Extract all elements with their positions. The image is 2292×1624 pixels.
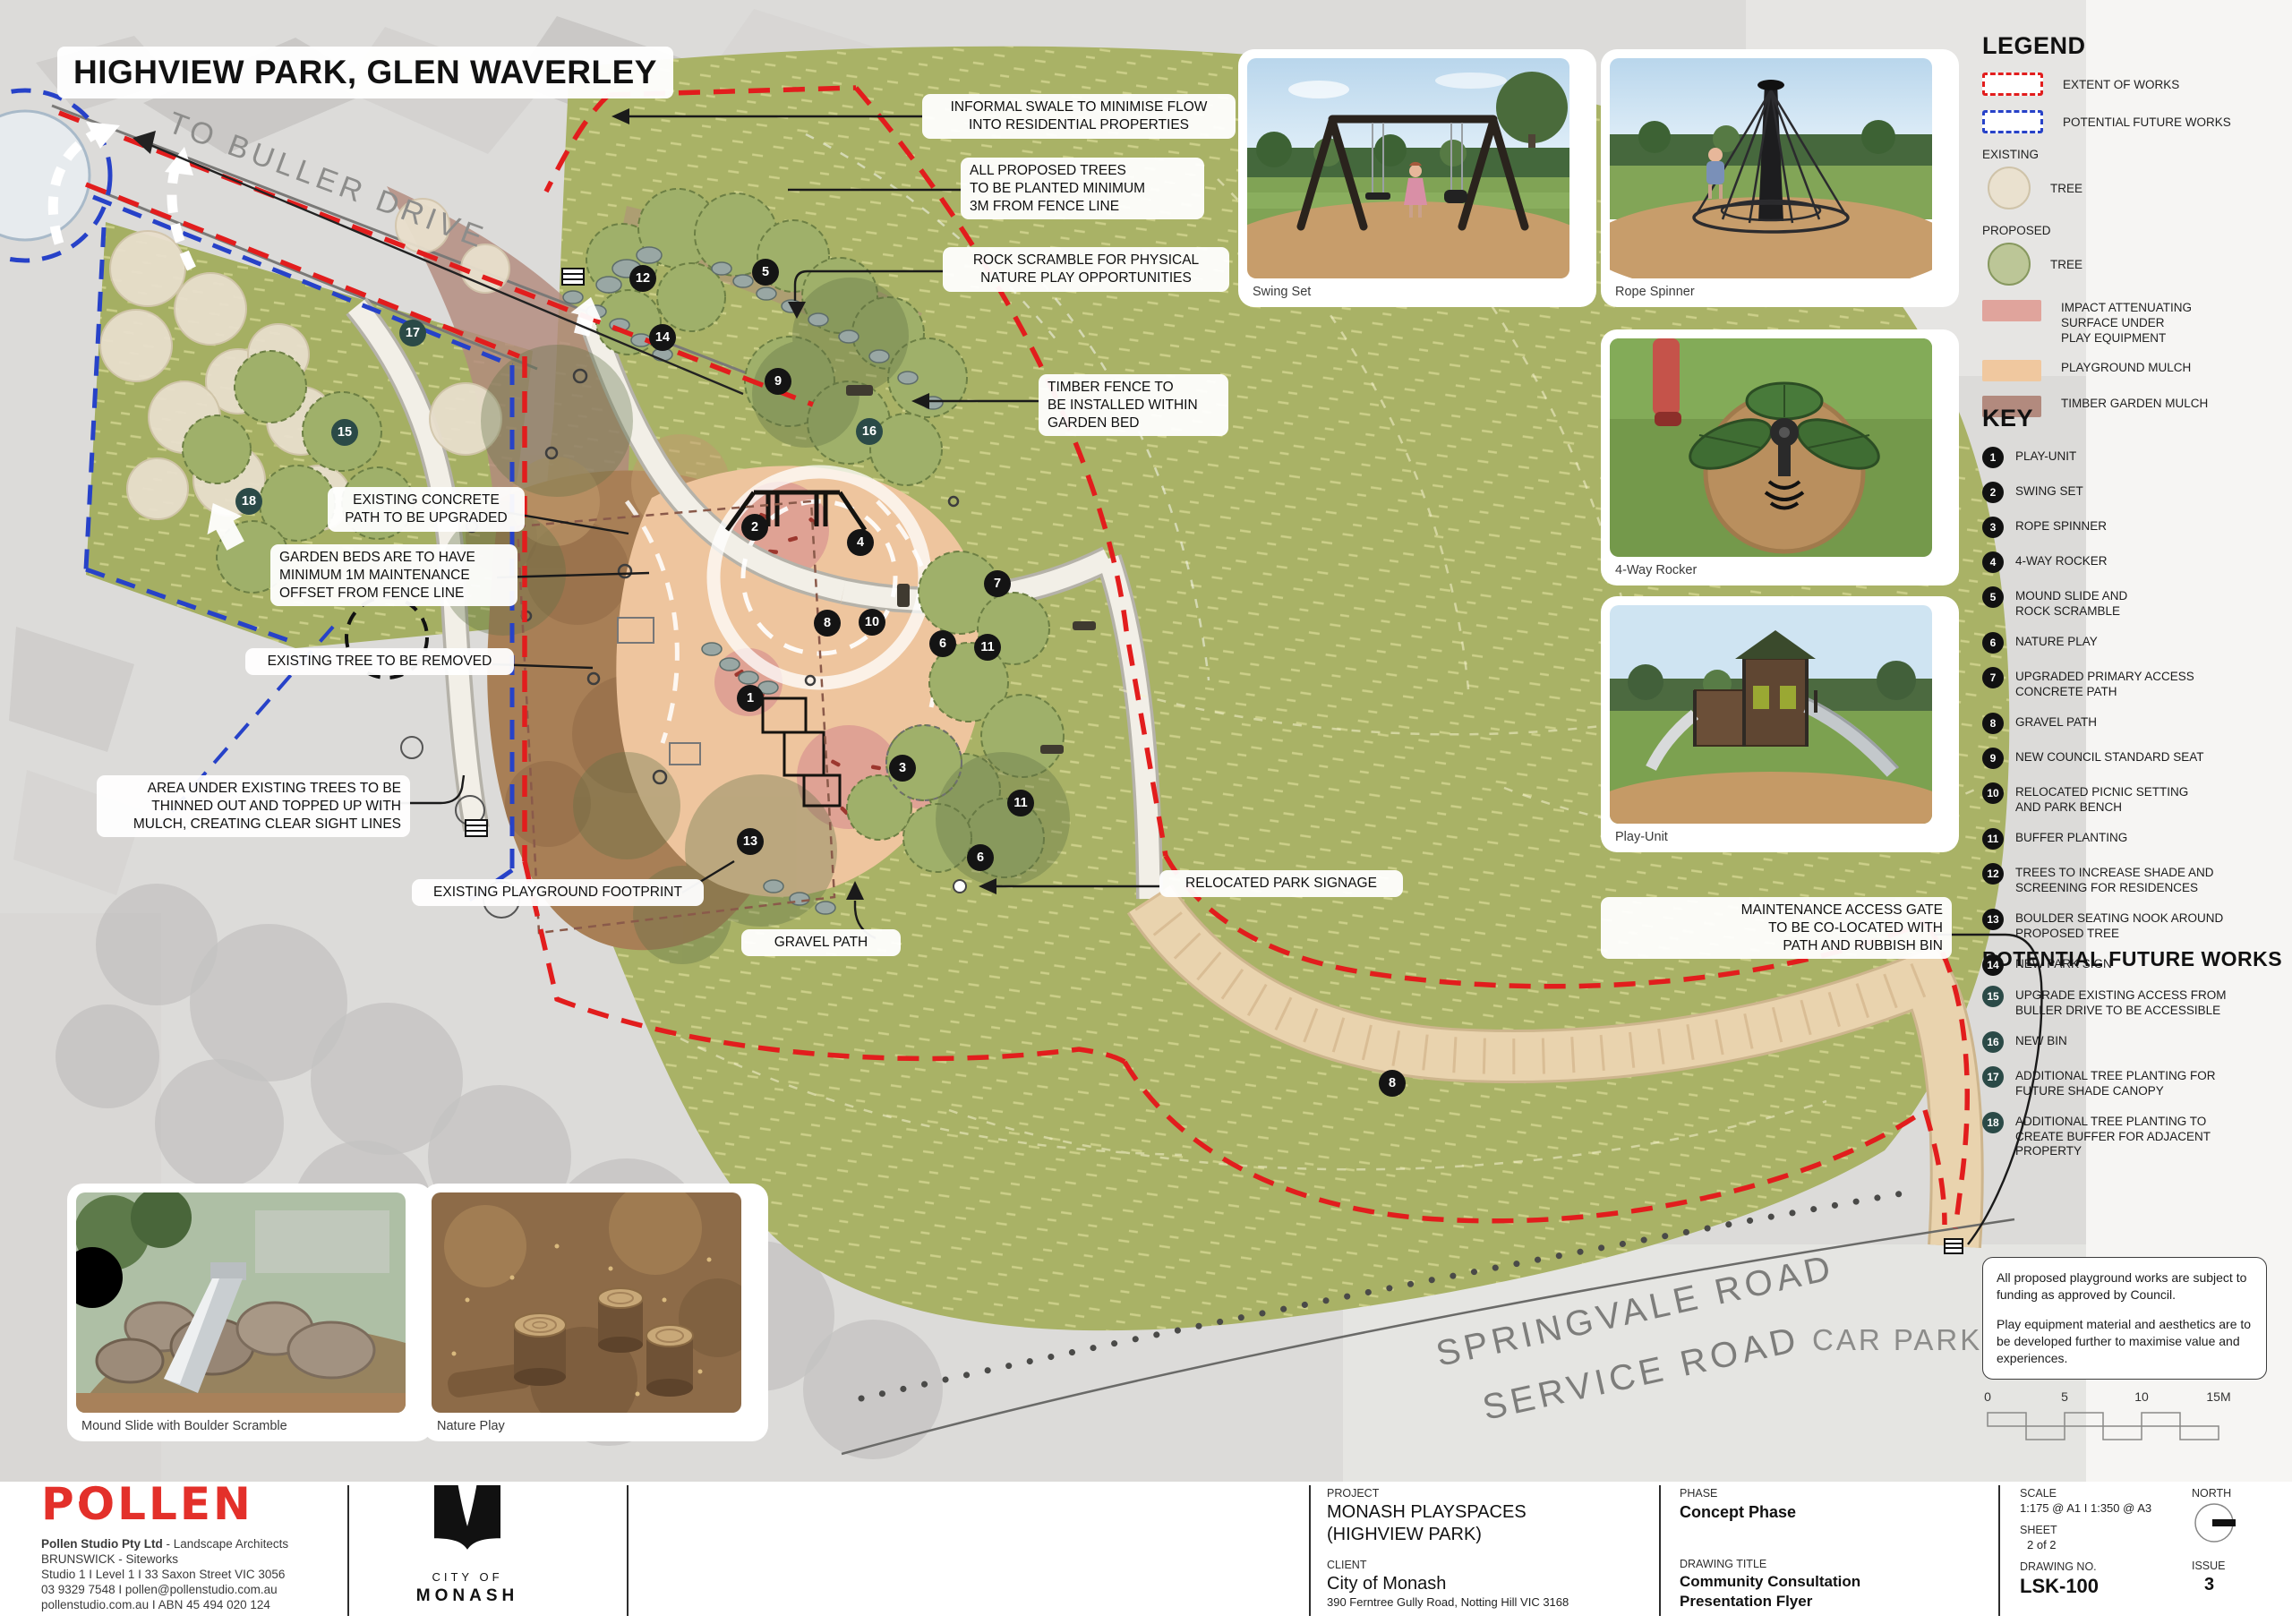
key-number-badge: 17 <box>1982 1066 2004 1088</box>
key-item-label: ADDITIONAL TREE PLANTING TO CREATE BUFFE… <box>2015 1110 2211 1159</box>
plan-callout: RELOCATED PARK SIGNAGE <box>1159 870 1403 897</box>
key-item: 12 TREES TO INCREASE SHADE AND SCREENING… <box>1982 861 2283 895</box>
key-number-badge: 12 <box>1982 863 2004 885</box>
plan-callout: GRAVEL PATH <box>741 929 901 956</box>
key-item-label: NATURE PLAY <box>2015 630 2098 650</box>
legend-item-label: POTENTIAL FUTURE WORKS <box>2063 115 2231 130</box>
legend-surface-item: PLAYGROUND MULCH <box>1982 360 2283 381</box>
key-item-label: BUFFER PLANTING <box>2015 826 2127 846</box>
plan-marker: 10 <box>859 609 885 636</box>
svg-text:POLLEN: POLLEN <box>41 1482 253 1526</box>
key-number-badge: 4 <box>1982 551 2004 573</box>
title-block: POLLEN Pollen Studio Pty Ltd - Landscape… <box>0 1482 2292 1624</box>
key-number-badge: 2 <box>1982 482 2004 503</box>
divider <box>627 1485 629 1616</box>
plan-callout: ROCK SCRAMBLE FOR PHYSICAL NATURE PLAY O… <box>943 247 1229 292</box>
plan-callout: INFORMAL SWALE TO MINIMISE FLOW INTO RES… <box>922 94 1236 139</box>
north-arrow-icon <box>2192 1501 2238 1548</box>
scale-bar-graphic <box>1984 1407 2235 1447</box>
scale-tick-label: 10 <box>2134 1389 2149 1404</box>
key-number-badge: 13 <box>1982 909 2004 930</box>
key-item-label: UPGRADED PRIMARY ACCESS CONCRETE PATH <box>2015 665 2194 699</box>
plan-marker: 13 <box>737 828 764 855</box>
legend-tree-group: EXISTING TREE <box>1982 148 2283 209</box>
firm-name: Pollen Studio Pty Ltd <box>41 1537 163 1551</box>
surface-swatch <box>1982 360 2041 381</box>
plan-marker: 2 <box>741 514 768 541</box>
legend-item-label: IMPACT ATTENUATING SURFACE UNDER PLAY EQ… <box>2061 300 2192 346</box>
sheet-label: SHEET <box>2020 1524 2181 1536</box>
scale-bar: 0 5 10 15M <box>1984 1389 2253 1454</box>
key-item: 11 BUFFER PLANTING <box>1982 826 2283 850</box>
gate-icon <box>1945 1239 1963 1253</box>
photo-caption: Mound Slide with Boulder Scramble <box>76 1413 423 1438</box>
divider <box>1309 1485 1311 1616</box>
key-item-label: UPGRADE EXISTING ACCESS FROM BULLER DRIV… <box>2015 984 2227 1018</box>
key-number-badge: 15 <box>1982 986 2004 1007</box>
north-label: NORTH <box>2192 1487 2290 1500</box>
scale-tick-label: 5 <box>2061 1389 2068 1404</box>
key-number-badge: 9 <box>1982 748 2004 769</box>
key-number-badge: 16 <box>1982 1031 2004 1053</box>
key-number-badge: 7 <box>1982 667 2004 688</box>
client-label: CLIENT <box>1327 1559 1649 1571</box>
drawing-title-value: Community Consultation Presentation Flye… <box>1680 1572 1984 1611</box>
tree-group-name: EXISTING <box>1982 148 2283 161</box>
future-works-item: 15 UPGRADE EXISTING ACCESS FROM BULLER D… <box>1982 984 2283 1018</box>
monash-city-of: CITY OF <box>414 1570 521 1584</box>
plan-marker: 6 <box>929 630 956 657</box>
project-label: PROJECT <box>1327 1487 1649 1500</box>
plan-marker: 4 <box>847 529 874 556</box>
key-number-badge: 1 <box>1982 447 2004 468</box>
plan-marker: 12 <box>629 265 656 292</box>
plan-marker: 5 <box>752 259 779 286</box>
key-item: 6 NATURE PLAY <box>1982 630 2283 654</box>
key-item-label: PLAY-UNIT <box>2015 445 2076 465</box>
plan-callout: EXISTING CONCRETE PATH TO BE UPGRADED <box>328 487 525 532</box>
north-issue-column: NORTH ISSUE 3 <box>2192 1487 2290 1596</box>
photo-caption: Play-Unit <box>1610 824 1950 849</box>
key-item-label: MOUND SLIDE AND ROCK SCRAMBLE <box>2015 585 2127 619</box>
plan-marker: 7 <box>984 570 1011 597</box>
key-item: 13 BOULDER SEATING NOOK AROUND PROPOSED … <box>1982 907 2283 941</box>
divider <box>347 1485 349 1616</box>
boundary-swatch <box>1982 73 2043 96</box>
phase-label: PHASE <box>1680 1487 1984 1500</box>
tree-group-name: PROPOSED <box>1982 224 2283 237</box>
key-item-label: RELOCATED PICNIC SETTING AND PARK BENCH <box>2015 781 2188 815</box>
key-item-label: TREES TO INCREASE SHADE AND SCREENING FO… <box>2015 861 2214 895</box>
notes-box: All proposed playground works are subjec… <box>1982 1257 2267 1380</box>
legend-boundary-item: POTENTIAL FUTURE WORKS <box>1982 110 2283 133</box>
plan-marker: 3 <box>889 755 916 782</box>
future-works-heading: POTENTIAL FUTURE WORKS <box>1982 947 2283 971</box>
plan-marker: 15 <box>331 419 358 446</box>
play-unit-render <box>1610 605 1932 824</box>
tree-swatch <box>1988 167 2031 209</box>
legend-section: LEGEND EXTENT OF WORKS POTENTIAL FUTURE … <box>1982 32 2283 432</box>
mound-slide-render <box>76 1192 406 1413</box>
key-number-badge: 18 <box>1982 1112 2004 1133</box>
phase-column: PHASE Concept Phase DRAWING TITLE Commun… <box>1680 1487 1984 1611</box>
plan-marker: 8 <box>814 610 841 637</box>
scale-tick-label: 15M <box>2206 1389 2230 1404</box>
pollen-logo: POLLEN <box>41 1482 310 1526</box>
key-item: 7 UPGRADED PRIMARY ACCESS CONCRETE PATH <box>1982 665 2283 699</box>
photo-caption: Nature Play <box>432 1413 759 1438</box>
concept-plan-flyer: HIGHVIEW PARK, GLEN WAVERLEY TO BULLER D… <box>0 0 2292 1624</box>
legend-boundary-item: EXTENT OF WORKS <box>1982 73 2283 96</box>
legend-surface-item: IMPACT ATTENUATING SURFACE UNDER PLAY EQ… <box>1982 300 2283 346</box>
photo-rope-spinner: Rope Spinner <box>1601 49 1959 307</box>
surface-swatch <box>1982 300 2041 321</box>
plan-marker: 9 <box>765 368 791 395</box>
city-of-monash-block: CITY OF MONASH <box>414 1485 521 1606</box>
divider <box>1998 1485 2000 1616</box>
plan-marker: 11 <box>1007 790 1034 816</box>
plan-callout: MAINTENANCE ACCESS GATE TO BE CO-LOCATED… <box>1601 897 1952 959</box>
key-number-badge: 10 <box>1982 782 2004 804</box>
plan-callout: EXISTING PLAYGROUND FOOTPRINT <box>412 879 704 906</box>
key-section: KEY 1 PLAY-UNIT 2 SWING SET 3 ROPE SPINN… <box>1982 405 2283 987</box>
photo-mound-slide: Mound Slide with Boulder Scramble <box>67 1184 432 1441</box>
key-item: 8 GRAVEL PATH <box>1982 711 2283 734</box>
sheet-value: 2 of 2 <box>2020 1538 2181 1551</box>
tree-swatch <box>1988 243 2031 286</box>
key-item-label: BOULDER SEATING NOOK AROUND PROPOSED TRE… <box>2015 907 2223 941</box>
client-address: 390 Ferntree Gully Road, Notting Hill VI… <box>1327 1595 1649 1609</box>
key-item-label: ADDITIONAL TREE PLANTING FOR FUTURE SHAD… <box>2015 1064 2216 1098</box>
plan-callout: ALL PROPOSED TREES TO BE PLANTED MINIMUM… <box>961 158 1204 219</box>
legend-item-label: PLAYGROUND MULCH <box>2061 360 2191 375</box>
key-item-label: NEW BIN <box>2015 1030 2067 1049</box>
key-number-badge: 5 <box>1982 586 2004 608</box>
phase-value: Concept Phase <box>1680 1501 1984 1524</box>
plan-marker: 14 <box>649 324 676 351</box>
legend-panel: LEGEND EXTENT OF WORKS POTENTIAL FUTURE … <box>1982 0 2283 1486</box>
plan-callout: GARDEN BEDS ARE TO HAVE MINIMUM 1M MAINT… <box>270 544 517 606</box>
pollen-studio-block: POLLEN Pollen Studio Pty Ltd - Landscape… <box>41 1482 310 1612</box>
plan-marker: 6 <box>967 844 994 871</box>
plan-callout: EXISTING TREE TO BE REMOVED <box>245 648 514 675</box>
legend-heading: LEGEND <box>1982 32 2283 60</box>
issue-label: ISSUE <box>2192 1560 2290 1572</box>
legend-tree-group: PROPOSED TREE <box>1982 224 2283 286</box>
legend-item-label: EXTENT OF WORKS <box>2063 77 2179 92</box>
future-works-item: 17 ADDITIONAL TREE PLANTING FOR FUTURE S… <box>1982 1064 2283 1098</box>
photo-nature-play: Nature Play <box>423 1184 768 1441</box>
photo-caption: 4-Way Rocker <box>1610 557 1950 582</box>
future-works-item: 18 ADDITIONAL TREE PLANTING TO CREATE BU… <box>1982 1110 2283 1159</box>
photo-caption: Rope Spinner <box>1610 278 1950 303</box>
drawing-no-value: LSK-100 <box>2020 1575 2181 1597</box>
key-item: 5 MOUND SLIDE AND ROCK SCRAMBLE <box>1982 585 2283 619</box>
swing-set-render <box>1247 58 1569 278</box>
key-item: 2 SWING SET <box>1982 480 2283 503</box>
client-value: City of Monash <box>1327 1573 1649 1595</box>
project-value: MONASH PLAYSPACES (HIGHVIEW PARK) <box>1327 1501 1649 1546</box>
key-number-badge: 3 <box>1982 517 2004 538</box>
plan-callout: TIMBER FENCE TO BE INSTALLED WITHIN GARD… <box>1039 374 1228 436</box>
key-item: 9 NEW COUNCIL STANDARD SEAT <box>1982 746 2283 769</box>
plan-callout: AREA UNDER EXISTING TREES TO BE THINNED … <box>97 775 410 837</box>
firm-line: BRUNSWICK - Siteworks <box>41 1551 310 1567</box>
note-paragraph: All proposed playground works are subjec… <box>1997 1269 2253 1303</box>
key-item-label: 4-WAY ROCKER <box>2015 550 2108 569</box>
firm-abn: pollenstudio.com.au I ABN 45 494 020 124 <box>41 1597 310 1612</box>
scale-value: 1:175 @ A1 I 1:350 @ A3 <box>2020 1501 2181 1515</box>
firm-contact: 03 9329 7548 I pollen@pollenstudio.com.a… <box>41 1582 310 1597</box>
note-paragraph: Play equipment material and aesthetics a… <box>1997 1316 2253 1367</box>
photo-play-unit: Play-Unit <box>1601 596 1959 852</box>
issue-value: 3 <box>2192 1574 2290 1596</box>
plan-marker: 11 <box>974 634 1001 661</box>
photo-swing-set: Swing Set <box>1238 49 1596 307</box>
photo-caption: Swing Set <box>1247 278 1587 303</box>
firm-address: Studio 1 I Level 1 I 33 Saxon Street VIC… <box>41 1567 310 1582</box>
key-number-badge: 11 <box>1982 828 2004 850</box>
key-item: 4 4-WAY ROCKER <box>1982 550 2283 573</box>
monash-logo <box>434 1485 500 1557</box>
future-works-section: POTENTIAL FUTURE WORKS 15 UPGRADE EXISTI… <box>1982 947 2283 1171</box>
key-item-label: ROPE SPINNER <box>2015 515 2107 534</box>
firm-role: - Landscape Architects <box>163 1537 288 1551</box>
key-item-label: NEW COUNCIL STANDARD SEAT <box>2015 746 2204 765</box>
drawing-title-label: DRAWING TITLE <box>1680 1558 1984 1570</box>
legend-item-label: TREE <box>2050 257 2082 272</box>
key-item: 10 RELOCATED PICNIC SETTING AND PARK BEN… <box>1982 781 2283 815</box>
project-client-column: PROJECT MONASH PLAYSPACES (HIGHVIEW PARK… <box>1327 1487 1649 1609</box>
car-park-label: CAR PARK <box>1812 1323 1982 1357</box>
legend-item-label: TREE <box>2050 181 2082 196</box>
key-number-badge: 6 <box>1982 632 2004 654</box>
four-way-rocker-render <box>1610 338 1932 557</box>
key-number-badge: 8 <box>1982 713 2004 734</box>
key-heading: KEY <box>1982 405 2283 432</box>
key-item: 1 PLAY-UNIT <box>1982 445 2283 468</box>
rope-spinner-render <box>1610 58 1932 278</box>
plan-marker: 18 <box>235 488 262 515</box>
drawing-no-label: DRAWING NO. <box>2020 1560 2181 1573</box>
key-item-label: GRAVEL PATH <box>2015 711 2097 731</box>
plan-marker: 1 <box>737 685 764 712</box>
scale-label: SCALE <box>2020 1487 2181 1500</box>
key-item: 3 ROPE SPINNER <box>1982 515 2283 538</box>
future-works-item: 16 NEW BIN <box>1982 1030 2283 1053</box>
monash-name: MONASH <box>414 1586 521 1606</box>
nature-play-render <box>432 1192 741 1413</box>
plan-marker: 16 <box>856 418 883 445</box>
scale-sheet-column: SCALE 1:175 @ A1 I 1:350 @ A3 SHEET 2 of… <box>2020 1487 2181 1597</box>
plan-marker: 17 <box>399 320 426 346</box>
key-item-label: SWING SET <box>2015 480 2083 500</box>
plan-marker: 8 <box>1379 1070 1406 1097</box>
photo-4-way-rocker: 4-Way Rocker <box>1601 329 1959 585</box>
scale-tick-label: 0 <box>1984 1389 1991 1404</box>
boundary-swatch <box>1982 110 2043 133</box>
page-title: HIGHVIEW PARK, GLEN WAVERLEY <box>57 47 673 98</box>
divider <box>1659 1485 1661 1616</box>
